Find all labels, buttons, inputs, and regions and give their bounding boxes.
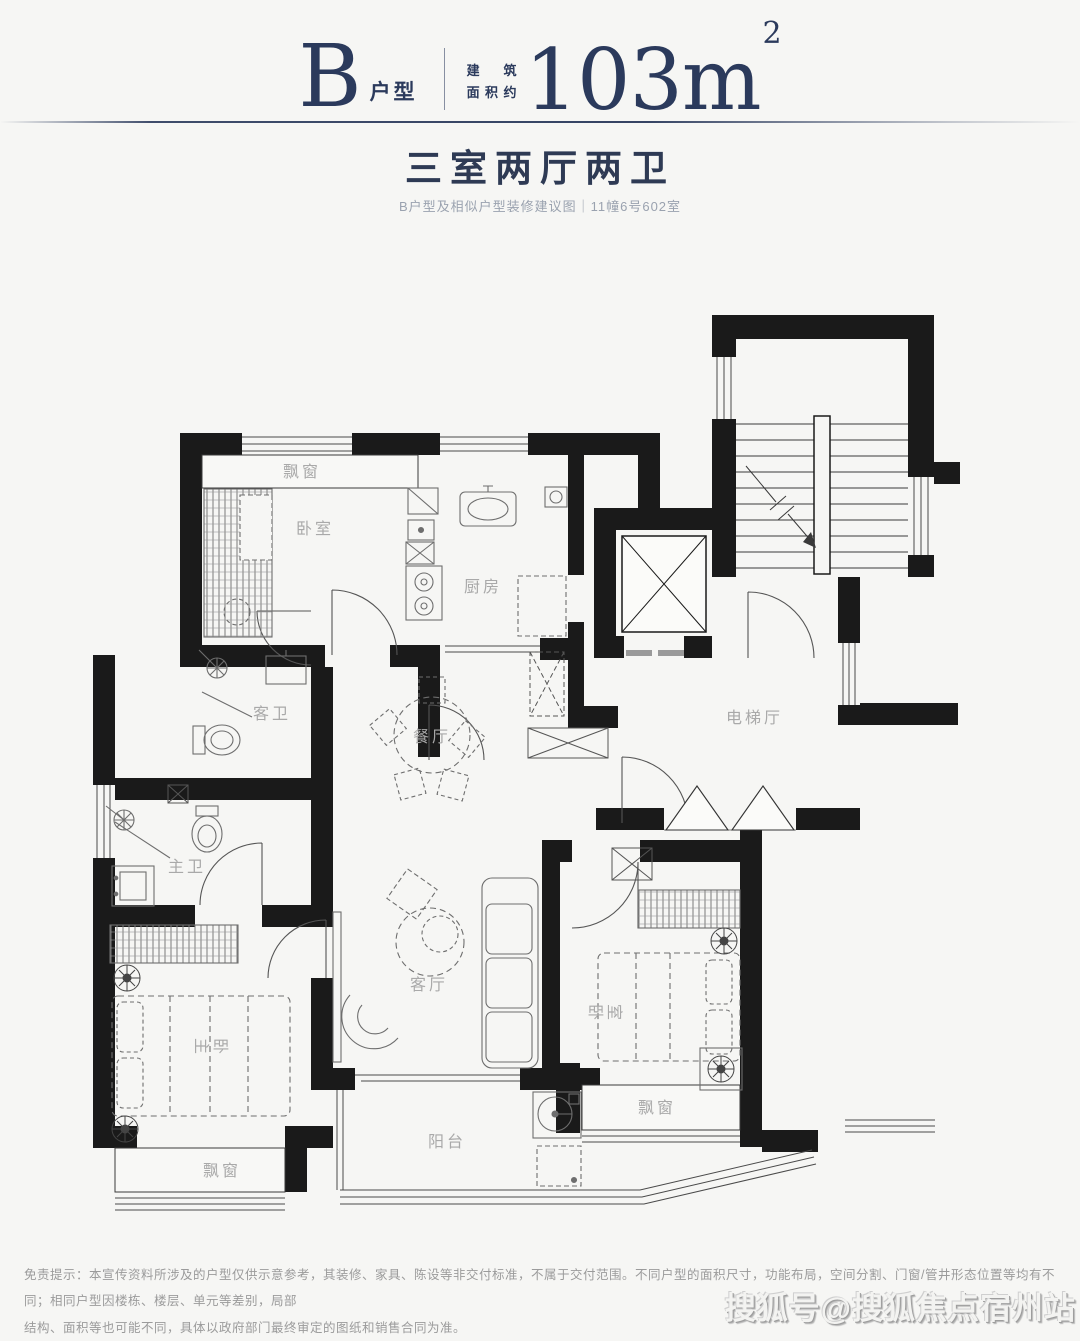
stairs — [736, 416, 908, 574]
label-living: 客厅 — [410, 976, 448, 994]
label-bedroom-top: 卧室 — [296, 520, 334, 538]
label-bay-top: 飘窗 — [283, 463, 321, 481]
label-kitchen: 厨房 — [464, 578, 502, 596]
label-bay-right: 飘窗 — [638, 1099, 676, 1117]
label-dining: 餐厅 — [413, 728, 451, 746]
label-bay-left: 飘窗 — [203, 1162, 241, 1180]
label-elevator-hall: 电梯厅 — [726, 709, 783, 727]
label-guest-bath: 客卫 — [253, 705, 291, 723]
label-master-bath: 主卫 — [168, 858, 206, 876]
floorplan: 飘窗 卧室 厨房 客卫 餐厅 电梯厅 主卫 主卧 客厅 卧室 飘窗 阳台 飘窗 — [0, 0, 1080, 1330]
watermark: 搜狐号@搜狐焦点宿州站 — [725, 1283, 1076, 1328]
label-balcony: 阳台 — [428, 1133, 466, 1151]
label-bedroom-right: 卧室 — [586, 1004, 623, 1023]
